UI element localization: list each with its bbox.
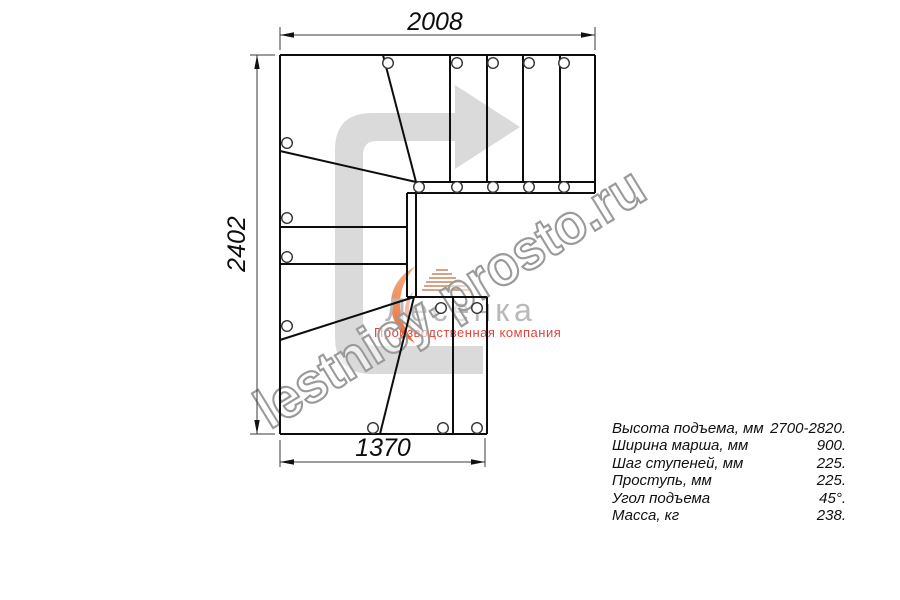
spec-value: 900. [817, 437, 846, 454]
spec-row: Высота подъема, мм 2700-2820. [612, 420, 846, 437]
spec-value: 225. [817, 472, 846, 489]
staircase-plan-page: Лесенка Производственная компания lestni… [0, 0, 900, 600]
dimension-left-label: 2402 [223, 216, 251, 273]
spec-label: Масса, кг [612, 507, 679, 524]
dimension-top: 2008 [280, 8, 595, 50]
dimension-bottom-label: 1370 [355, 434, 411, 462]
spec-label: Угол подъема [612, 490, 710, 507]
spec-label: Проступь, мм [612, 472, 712, 489]
spec-label: Высота подъема, мм [612, 420, 764, 437]
dimension-top-label: 2008 [406, 8, 463, 36]
spec-value: 2700-2820. [770, 420, 846, 437]
spec-row: Масса, кг 238. [612, 507, 846, 524]
spec-value: 45°. [819, 490, 846, 507]
spec-row: Ширина марша, мм 900. [612, 437, 846, 454]
spec-row: Проступь, мм 225. [612, 472, 846, 489]
spec-row: Угол подъема 45°. [612, 490, 846, 507]
spec-value: 225. [817, 455, 846, 472]
spec-row: Шаг ступеней, мм 225. [612, 455, 846, 472]
spec-value: 238. [817, 507, 846, 524]
spec-label: Шаг ступеней, мм [612, 455, 743, 472]
spec-label: Ширина марша, мм [612, 437, 748, 454]
dimension-bottom: 1370 [280, 434, 485, 467]
spec-table: Высота подъема, мм 2700-2820. Ширина мар… [612, 420, 846, 524]
